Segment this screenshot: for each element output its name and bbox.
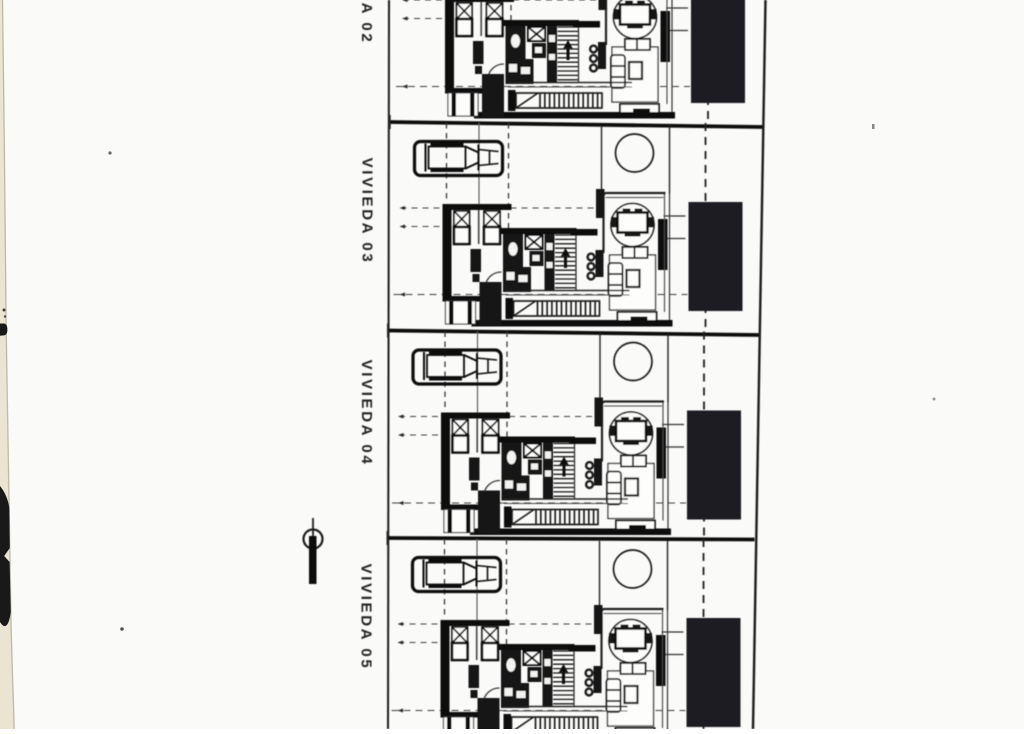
svg-text:VIVIEDA 02: VIVIEDA 02 — [358, 0, 375, 44]
svg-text:VIVIEDA 05: VIVIEDA 05 — [358, 564, 375, 671]
svg-text:VIVIEDA 04: VIVIEDA 04 — [358, 360, 375, 467]
svg-text:VIVIEDA 03: VIVIEDA 03 — [359, 158, 376, 265]
